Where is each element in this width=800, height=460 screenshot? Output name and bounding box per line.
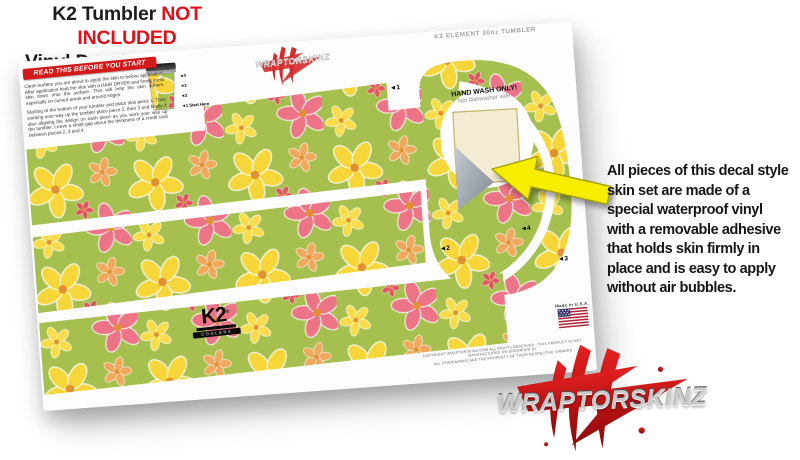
piece-label-4: ◄4 [520, 225, 531, 233]
registered-mark: ® [225, 309, 228, 315]
headline-line1: K2 Tumbler NOT INCLUDED [2, 2, 252, 50]
made-in-usa: Made in U.S.A. [543, 299, 603, 334]
description-text: All pieces of this decal style skin set … [607, 162, 800, 299]
tumbler-guide-labels: ◄4 ◄3 ◄2 ◄1 Start Here [179, 68, 222, 111]
us-flag-icon [557, 307, 589, 329]
callout-arrow-icon [480, 138, 620, 220]
k2-coolers-logo: K2® COOLERS [188, 302, 243, 339]
piece-label-1: ◄1 [390, 84, 401, 92]
piece-label-3: ◄3 [558, 255, 569, 263]
piece-label-2: ◄2 [440, 245, 451, 253]
headline-product: K2 Tumbler [52, 3, 156, 25]
wraptorskinz-logo: WRAPTORSKINZ [480, 336, 724, 460]
product-image: K2 Tumbler NOT INCLUDED Vinyl Decal Skin… [0, 0, 800, 460]
